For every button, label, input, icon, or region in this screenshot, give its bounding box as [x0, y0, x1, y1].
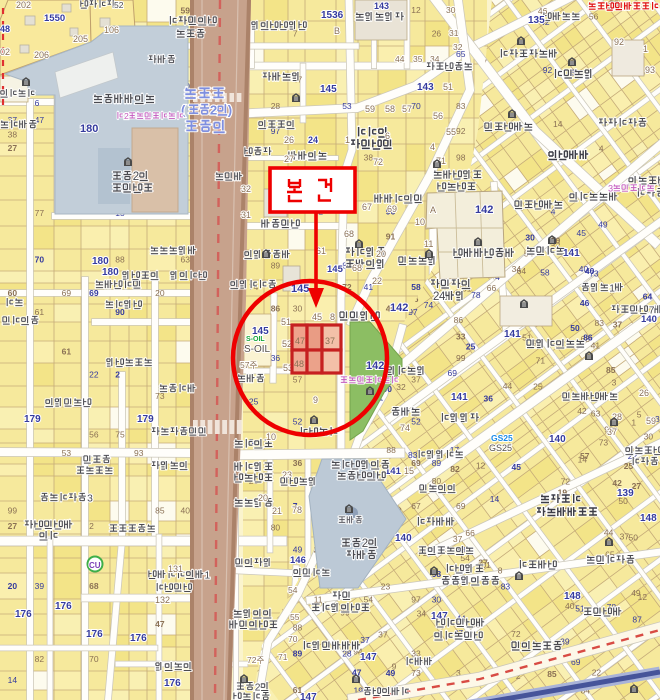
svg-text:73: 73 — [589, 269, 599, 279]
svg-text:55: 55 — [446, 127, 456, 137]
svg-text:1536: 1536 — [321, 10, 344, 21]
svg-text:5: 5 — [637, 409, 642, 419]
svg-text:2: 2 — [89, 521, 94, 531]
svg-text:2: 2 — [133, 171, 139, 183]
svg-text:44: 44 — [604, 528, 614, 538]
svg-text:53: 53 — [62, 448, 72, 458]
svg-text:51: 51 — [443, 82, 453, 92]
svg-text:32: 32 — [241, 184, 251, 194]
svg-text:GS25: GS25 — [491, 433, 513, 443]
svg-text:2: 2 — [255, 682, 261, 693]
svg-text:75: 75 — [115, 430, 125, 440]
svg-text:): ) — [228, 103, 232, 118]
svg-text:99: 99 — [456, 353, 466, 363]
svg-text:64: 64 — [643, 292, 653, 302]
svg-text:73: 73 — [599, 438, 609, 448]
svg-text:1: 1 — [643, 44, 648, 54]
svg-text:10: 10 — [415, 217, 425, 227]
svg-text:91: 91 — [386, 232, 396, 242]
svg-text:3: 3 — [612, 378, 617, 388]
svg-text:S-OIL: S-OIL — [244, 344, 271, 355]
svg-text:202: 202 — [16, 0, 31, 10]
svg-text:179: 179 — [137, 414, 154, 425]
svg-text:1: 1 — [631, 418, 636, 428]
svg-text:52: 52 — [293, 416, 303, 426]
svg-text:47: 47 — [295, 336, 305, 346]
svg-text:CU: CU — [89, 561, 101, 570]
svg-text:34: 34 — [512, 264, 522, 274]
svg-text:27: 27 — [8, 143, 18, 153]
svg-text:57: 57 — [402, 104, 412, 114]
svg-text:37: 37 — [453, 534, 463, 544]
svg-text:14: 14 — [8, 675, 18, 685]
svg-text:36: 36 — [484, 394, 494, 404]
svg-text:78: 78 — [292, 505, 302, 515]
svg-text:131: 131 — [168, 564, 183, 574]
svg-text:38: 38 — [364, 153, 374, 163]
svg-text:52: 52 — [114, 0, 124, 10]
svg-text:20: 20 — [258, 493, 268, 503]
svg-text:49: 49 — [293, 545, 303, 555]
svg-text:35: 35 — [413, 54, 423, 64]
svg-text:20: 20 — [376, 249, 386, 259]
svg-text:142: 142 — [390, 302, 408, 314]
svg-text:2: 2 — [210, 103, 217, 118]
svg-text:2: 2 — [115, 369, 120, 379]
svg-text:63: 63 — [591, 409, 601, 419]
svg-text:38: 38 — [8, 130, 18, 140]
svg-text:148: 148 — [564, 591, 581, 602]
svg-text:69: 69 — [448, 368, 458, 378]
svg-text:82: 82 — [450, 464, 460, 474]
svg-text:73: 73 — [411, 668, 421, 678]
svg-text:45: 45 — [512, 462, 522, 472]
svg-text:20: 20 — [155, 288, 165, 298]
svg-text:20: 20 — [8, 581, 18, 591]
svg-text:88: 88 — [115, 255, 125, 265]
svg-text:69: 69 — [456, 501, 466, 511]
svg-text:82: 82 — [35, 654, 45, 664]
svg-text:205: 205 — [73, 34, 88, 44]
svg-text:4: 4 — [439, 291, 446, 303]
svg-text:40: 40 — [181, 505, 191, 515]
svg-text:10: 10 — [266, 432, 276, 442]
svg-text:69: 69 — [89, 288, 99, 298]
svg-text:28: 28 — [271, 101, 281, 111]
svg-text:52: 52 — [411, 416, 421, 426]
svg-text:1: 1 — [205, 570, 211, 581]
svg-text:206: 206 — [34, 50, 49, 60]
svg-text:66: 66 — [487, 283, 497, 293]
svg-text:30: 30 — [432, 595, 442, 605]
svg-text:36: 36 — [271, 353, 281, 363]
svg-text:9: 9 — [392, 662, 397, 672]
svg-text:15: 15 — [404, 466, 414, 476]
svg-text:70: 70 — [288, 634, 298, 644]
svg-text:45: 45 — [312, 312, 322, 322]
svg-text:22: 22 — [372, 276, 382, 286]
svg-text:68: 68 — [89, 581, 99, 591]
svg-text:180: 180 — [102, 267, 119, 278]
svg-text:106: 106 — [104, 25, 119, 35]
svg-text:87: 87 — [632, 615, 642, 625]
svg-text:42: 42 — [577, 406, 587, 416]
svg-text:4: 4 — [599, 143, 604, 153]
svg-text:88: 88 — [386, 445, 396, 455]
svg-text:54: 54 — [288, 585, 298, 595]
svg-text:26: 26 — [284, 135, 294, 145]
svg-text:140: 140 — [641, 314, 657, 325]
svg-text:1550: 1550 — [44, 13, 65, 24]
svg-text:69: 69 — [387, 204, 397, 214]
svg-text:24: 24 — [308, 135, 318, 145]
svg-text:85: 85 — [155, 505, 165, 515]
svg-text:11: 11 — [424, 239, 433, 249]
svg-text:12: 12 — [476, 460, 486, 470]
svg-text:34: 34 — [417, 609, 427, 619]
svg-text:142: 142 — [366, 360, 384, 372]
svg-text:72: 72 — [511, 629, 521, 639]
svg-text:B: B — [334, 26, 340, 36]
svg-text:27: 27 — [8, 521, 18, 531]
svg-text:77: 77 — [35, 208, 45, 218]
svg-text:176: 176 — [15, 609, 32, 620]
svg-text:72: 72 — [561, 477, 571, 487]
svg-text:50: 50 — [629, 533, 639, 543]
svg-text:12: 12 — [638, 592, 648, 602]
svg-text:70: 70 — [411, 101, 421, 111]
svg-text:30: 30 — [293, 304, 303, 314]
svg-text:93: 93 — [645, 65, 655, 75]
svg-text:89: 89 — [293, 649, 303, 659]
svg-text:31: 31 — [241, 210, 251, 220]
svg-text:99: 99 — [8, 505, 18, 515]
svg-text:145: 145 — [320, 84, 337, 95]
svg-text:1: 1 — [345, 135, 350, 145]
svg-text:176: 176 — [164, 678, 181, 689]
svg-text:8: 8 — [330, 312, 335, 322]
svg-text:80: 80 — [271, 523, 281, 533]
svg-text:56: 56 — [589, 12, 599, 22]
svg-text:37: 37 — [613, 320, 623, 330]
svg-text:23: 23 — [381, 582, 391, 592]
svg-text:92: 92 — [543, 65, 553, 75]
svg-text:A: A — [430, 205, 436, 215]
svg-text:180: 180 — [80, 123, 98, 135]
svg-text:39: 39 — [35, 581, 45, 591]
svg-text:46: 46 — [580, 298, 590, 308]
svg-text:33: 33 — [456, 332, 466, 342]
svg-text:2: 2 — [362, 538, 368, 550]
svg-text:14: 14 — [578, 455, 588, 465]
svg-text:22: 22 — [89, 369, 99, 379]
svg-text:59: 59 — [365, 104, 375, 114]
svg-text:27: 27 — [284, 154, 294, 164]
svg-text:3: 3 — [87, 493, 93, 504]
svg-text:67: 67 — [411, 501, 421, 511]
svg-text:147: 147 — [300, 692, 317, 700]
svg-text:140: 140 — [549, 434, 566, 445]
svg-text:92: 92 — [456, 126, 466, 136]
svg-text:85: 85 — [606, 365, 616, 375]
svg-text:3: 3 — [608, 183, 613, 193]
svg-text:85: 85 — [547, 669, 557, 679]
svg-text:56: 56 — [89, 430, 99, 440]
svg-text:146: 146 — [290, 555, 306, 566]
svg-text:2: 2 — [124, 111, 129, 121]
svg-text:12: 12 — [411, 5, 421, 15]
svg-text:26: 26 — [639, 388, 649, 398]
svg-text:176: 176 — [55, 601, 72, 612]
svg-text:97: 97 — [411, 595, 421, 605]
svg-text:53: 53 — [342, 101, 352, 111]
svg-text:83: 83 — [595, 318, 605, 328]
svg-text:59: 59 — [181, 6, 191, 16]
svg-text:57: 57 — [293, 375, 303, 385]
svg-text:92: 92 — [614, 37, 624, 47]
svg-text:68: 68 — [352, 263, 362, 273]
svg-text:9: 9 — [313, 395, 318, 405]
svg-text:180: 180 — [92, 256, 109, 267]
svg-text:176: 176 — [130, 633, 147, 644]
svg-text:55: 55 — [290, 612, 300, 622]
svg-text:25: 25 — [466, 342, 476, 352]
svg-text:139: 139 — [617, 488, 634, 499]
svg-text:135: 135 — [528, 15, 545, 26]
svg-text:37: 37 — [360, 635, 370, 645]
svg-text:44: 44 — [395, 54, 405, 64]
svg-text:141: 141 — [563, 248, 580, 259]
svg-text:78: 78 — [471, 290, 481, 300]
svg-text:68: 68 — [344, 229, 354, 239]
svg-text:37: 37 — [620, 531, 630, 541]
svg-text:37: 37 — [325, 336, 335, 346]
svg-text:GS25: GS25 — [489, 443, 512, 453]
svg-text:86: 86 — [271, 304, 281, 314]
svg-text:147: 147 — [360, 652, 377, 663]
svg-text:63: 63 — [181, 255, 191, 265]
svg-text:67: 67 — [362, 202, 372, 212]
svg-text:83: 83 — [501, 582, 511, 592]
svg-text:132: 132 — [155, 595, 170, 605]
svg-text:58: 58 — [385, 104, 395, 114]
svg-text:S-OIL: S-OIL — [246, 336, 265, 343]
svg-text:71: 71 — [278, 652, 288, 662]
svg-text:31: 31 — [449, 28, 459, 38]
svg-text:140: 140 — [395, 533, 412, 544]
svg-text:21: 21 — [272, 506, 282, 516]
svg-text:36: 36 — [293, 458, 303, 468]
svg-text:72주: 72주 — [247, 655, 264, 665]
svg-text:56: 56 — [433, 111, 443, 121]
svg-text:26: 26 — [432, 29, 442, 39]
svg-text:141: 141 — [451, 392, 468, 403]
svg-text:30: 30 — [525, 232, 535, 242]
svg-text:70: 70 — [89, 654, 99, 664]
svg-text:(: ( — [181, 103, 186, 118]
svg-text:6: 6 — [385, 131, 390, 141]
svg-text:49: 49 — [598, 219, 608, 229]
svg-text:83: 83 — [408, 450, 418, 460]
svg-text:22: 22 — [592, 667, 602, 677]
svg-text:30: 30 — [446, 5, 456, 15]
svg-text:48: 48 — [294, 359, 304, 369]
svg-text:1: 1 — [609, 283, 615, 294]
svg-text:83: 83 — [456, 101, 466, 111]
svg-text:59: 59 — [646, 416, 656, 426]
svg-text:6: 6 — [35, 98, 40, 108]
svg-text:61: 61 — [62, 347, 72, 357]
svg-text:145: 145 — [327, 264, 344, 275]
svg-text:72: 72 — [373, 157, 383, 167]
svg-text:42: 42 — [612, 478, 622, 488]
svg-text:32: 32 — [396, 382, 406, 392]
svg-text:74: 74 — [400, 423, 410, 433]
svg-text:32: 32 — [453, 42, 463, 52]
svg-text:89: 89 — [271, 261, 281, 271]
svg-text:37: 37 — [607, 427, 617, 437]
svg-text:40: 40 — [565, 601, 575, 611]
svg-text:143: 143 — [374, 1, 389, 11]
svg-text:30: 30 — [644, 432, 654, 442]
svg-text:45: 45 — [577, 228, 587, 238]
svg-text:71: 71 — [536, 355, 546, 365]
svg-text:02: 02 — [0, 47, 10, 57]
svg-text:66: 66 — [465, 528, 475, 538]
svg-text:98: 98 — [456, 153, 466, 163]
svg-text:142: 142 — [475, 204, 493, 216]
svg-text:148: 148 — [640, 513, 657, 524]
svg-text:86: 86 — [454, 315, 464, 325]
svg-text:176: 176 — [86, 629, 103, 640]
svg-text:14: 14 — [553, 119, 563, 129]
svg-text:48: 48 — [0, 24, 10, 34]
svg-text:93: 93 — [134, 448, 144, 458]
svg-text:14: 14 — [490, 494, 500, 504]
svg-text:58: 58 — [411, 282, 421, 292]
svg-text:70: 70 — [35, 255, 45, 265]
svg-text:47: 47 — [155, 619, 165, 629]
svg-text:57주: 57주 — [240, 360, 257, 370]
svg-text:51: 51 — [281, 317, 291, 327]
svg-text:8: 8 — [498, 566, 503, 576]
svg-text:37: 37 — [378, 629, 388, 639]
svg-text:4: 4 — [430, 142, 435, 152]
svg-text:69: 69 — [62, 288, 72, 298]
svg-text:44: 44 — [503, 381, 513, 391]
svg-text:143: 143 — [417, 82, 434, 93]
svg-text:58: 58 — [540, 268, 550, 278]
svg-text:25: 25 — [533, 382, 543, 392]
svg-text:60: 60 — [8, 288, 18, 298]
svg-text:88: 88 — [293, 622, 303, 632]
svg-text:50: 50 — [570, 323, 580, 333]
svg-text:179: 179 — [24, 414, 41, 425]
svg-text:141: 141 — [504, 329, 521, 340]
